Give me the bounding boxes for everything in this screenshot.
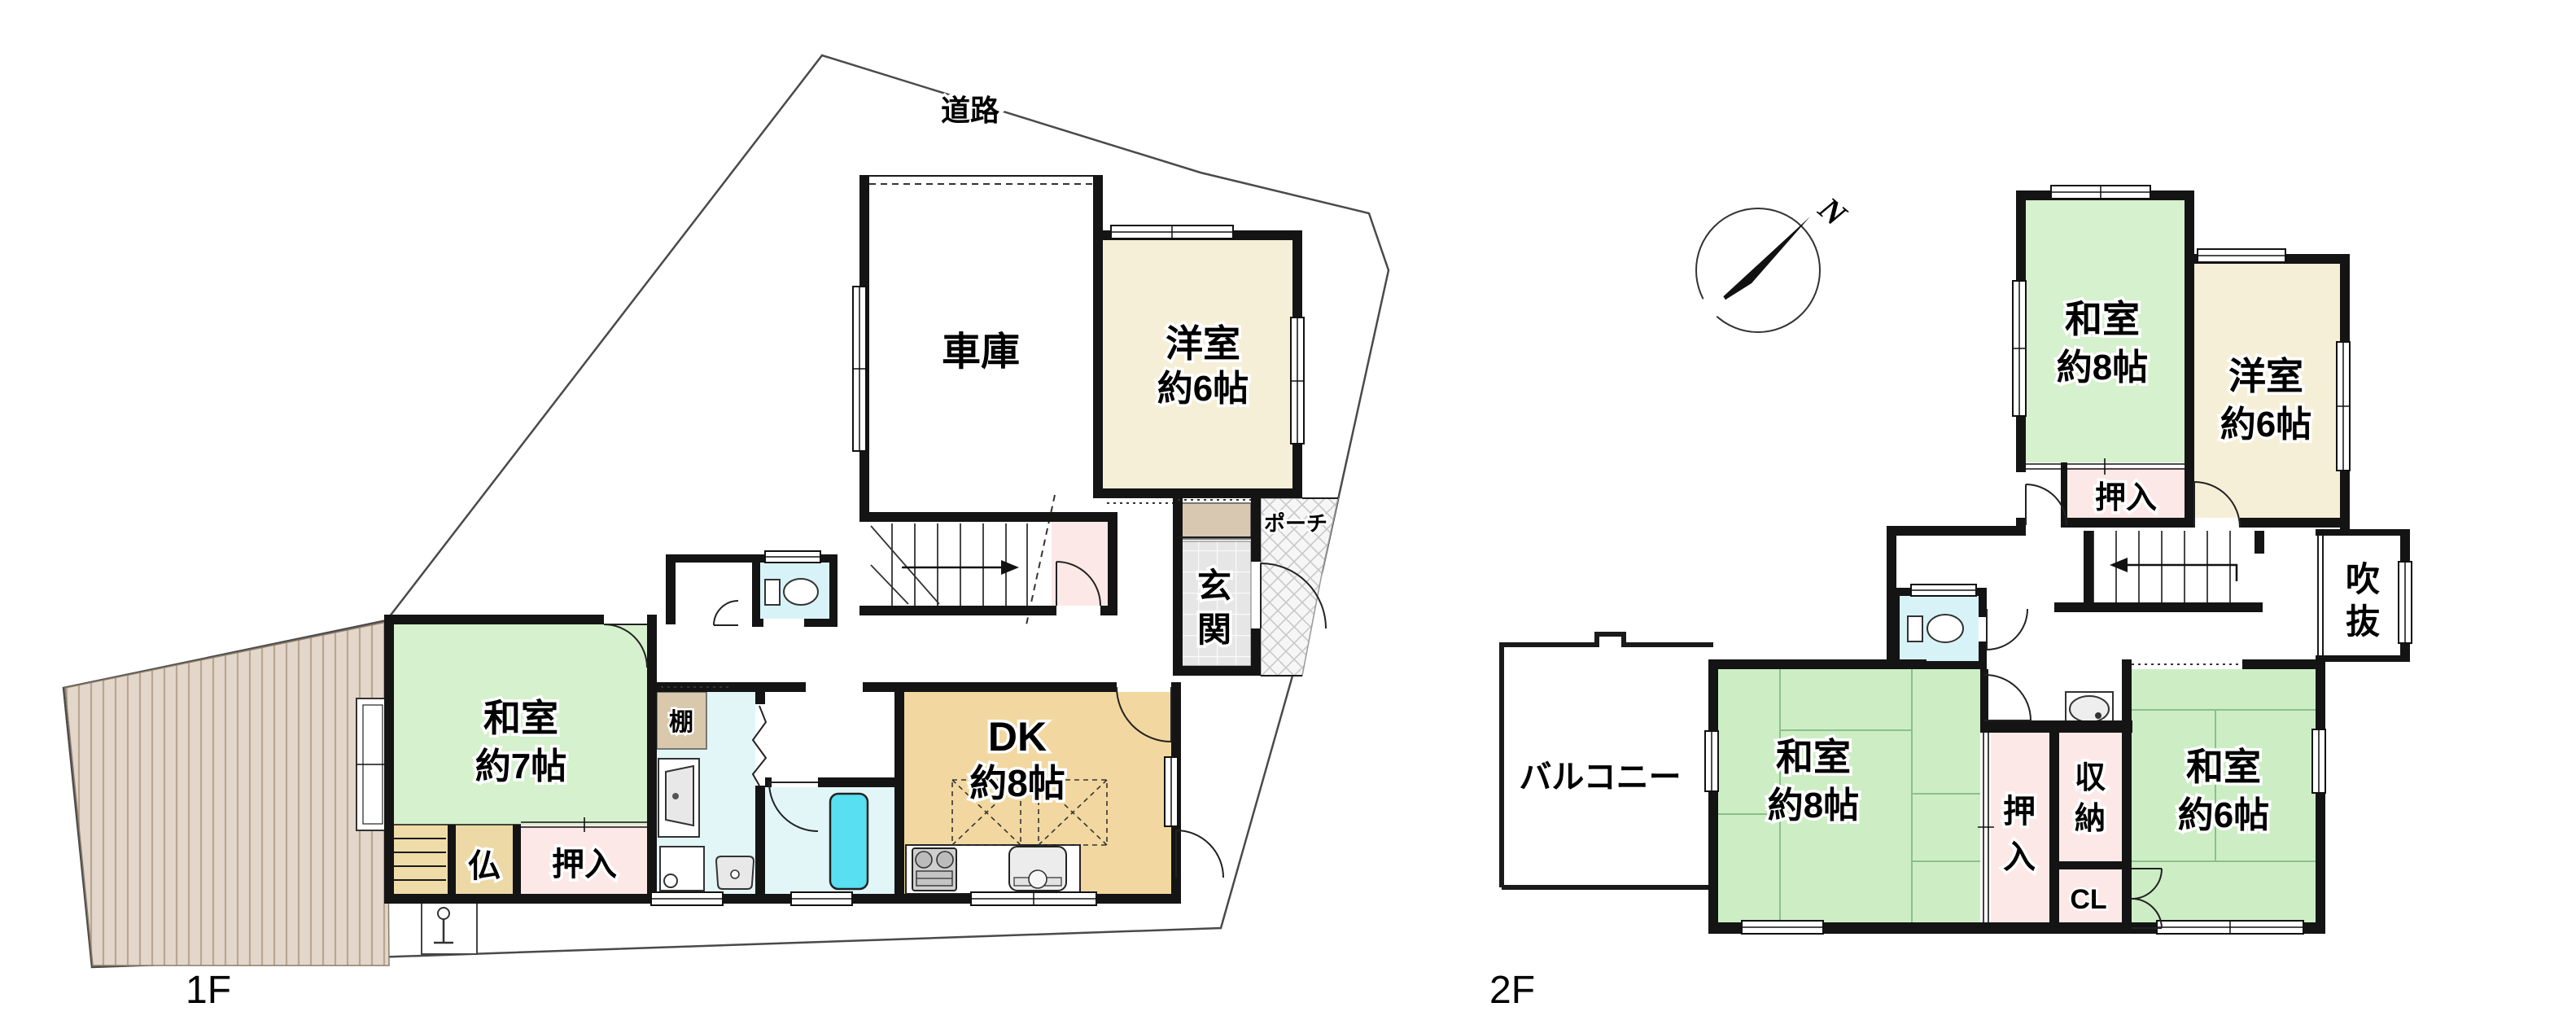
- storage-label-2: 納: [2075, 802, 2106, 836]
- floorplan-svg: 道路 車庫 洋室 約6帖 DK 約8帖 和室 約7帖 仏 押入 棚 玄 関 ポー…: [0, 0, 2576, 1029]
- cl-label: CL: [2070, 884, 2106, 915]
- oshiire-north-label: 押入: [2095, 481, 2157, 515]
- washing-machine-icon: [660, 847, 704, 891]
- western1f-label-2: 約6帖: [1157, 369, 1249, 409]
- bathtub-icon: [830, 794, 868, 889]
- outdoor-faucet: [422, 897, 477, 954]
- genkan-label-2: 関: [1197, 611, 1231, 649]
- shoe-cabinet: [1178, 503, 1251, 539]
- stove-icon: [912, 848, 956, 891]
- japanese8w-label-1: 和室: [1776, 736, 1851, 778]
- floor2-name: 2F: [1489, 969, 1535, 1012]
- washbasin-icon: [658, 759, 699, 837]
- western1f-label-1: 洋室: [1166, 322, 1240, 365]
- garden-hatch: [65, 622, 389, 966]
- dk-label-1: DK: [988, 714, 1047, 760]
- toilet-2f-icon: [1908, 615, 1963, 642]
- japanese8w-label-2: 約8帖: [1768, 786, 1859, 825]
- shelf-label: 棚: [669, 709, 693, 736]
- floor1-plan: 道路 車庫 洋室 約6帖 DK 約8帖 和室 約7帖 仏 押入 棚 玄 関 ポー…: [63, 55, 1389, 1012]
- oshiire-center-label-1: 押: [2003, 794, 2036, 830]
- genkan-label-1: 玄: [1197, 567, 1231, 605]
- oshiire-center-label-2: 入: [2003, 839, 2036, 875]
- toilet-1f-icon: [765, 579, 818, 605]
- western2f-label-1: 洋室: [2228, 355, 2303, 397]
- compass-n: N: [1811, 189, 1854, 234]
- garage-label: 車庫: [942, 331, 1020, 374]
- floor1-name: 1F: [186, 969, 231, 1012]
- road-label: 道路: [941, 94, 1000, 127]
- porch-label: ポーチ: [1264, 511, 1327, 536]
- void-label-1: 吹: [2346, 560, 2380, 598]
- oshiire1f-label: 押入: [552, 847, 617, 882]
- western2f-label-2: 約6帖: [2220, 405, 2311, 444]
- japanese1f-label-1: 和室: [483, 697, 558, 739]
- room-storage: [2059, 733, 2122, 861]
- japanese6-label-2: 約6帖: [2178, 795, 2269, 835]
- japanese1f-label-2: 約7帖: [475, 747, 566, 786]
- japanese6-label-1: 和室: [2186, 746, 2261, 788]
- japanese8n-label-2: 約8帖: [2057, 348, 2148, 388]
- balcony-label: バルコニー: [1519, 760, 1681, 795]
- dk-label-2: 約8帖: [969, 762, 1065, 804]
- japanese8n-label-1: 和室: [2065, 298, 2140, 340]
- stairs-2f: [2093, 531, 2237, 602]
- butsudan-label: 仏: [468, 848, 501, 884]
- floorplan-canvas: 道路 車庫 洋室 約6帖 DK 約8帖 和室 約7帖 仏 押入 棚 玄 関 ポー…: [0, 0, 2576, 1029]
- small-basin-icon: [716, 856, 754, 889]
- kitchen: [906, 845, 1080, 894]
- floor2-plan: N: [1489, 186, 2412, 1012]
- sink-icon: [1009, 847, 1066, 891]
- compass: N: [1696, 189, 1855, 332]
- storage-label-1: 収: [2075, 761, 2106, 795]
- room-step-strip: [389, 825, 448, 894]
- void-label-2: 抜: [2346, 602, 2380, 641]
